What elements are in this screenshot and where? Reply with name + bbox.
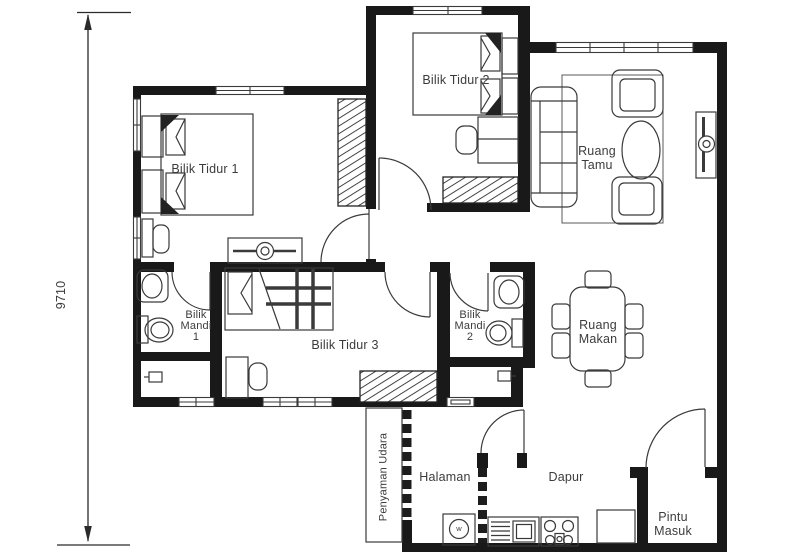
door-bilik-tidur-1 bbox=[321, 209, 369, 262]
nightstand-icon bbox=[142, 170, 163, 213]
wall-bm2-right bbox=[523, 262, 535, 368]
fixtures-bilik-mandi-1 bbox=[137, 270, 173, 382]
tap-icon bbox=[498, 371, 511, 381]
hatched-wardrobe-icon bbox=[360, 371, 437, 402]
window-bt2-top bbox=[413, 7, 482, 15]
window-ruangtamu-top bbox=[556, 43, 693, 53]
tap-icon bbox=[149, 372, 162, 382]
window-bt1-top bbox=[216, 87, 284, 95]
wall-entry-stub-right bbox=[705, 467, 719, 478]
dresser-round-mirror-icon bbox=[228, 238, 302, 263]
vanity-table-icon bbox=[142, 219, 153, 257]
window-bottom-1 bbox=[179, 398, 214, 407]
counter-icon bbox=[597, 510, 635, 543]
washer-letter: w bbox=[456, 525, 461, 533]
chair-icon bbox=[456, 126, 477, 154]
nightstand-icon bbox=[142, 116, 163, 157]
plaid-bed-icon bbox=[225, 268, 333, 330]
room-label-bilik-mandi-1: Bilik Mandi 1 bbox=[181, 310, 212, 344]
hatched-wardrobe-icon bbox=[443, 177, 518, 203]
kitchen-sink-icon bbox=[488, 517, 539, 546]
furniture-bilik-tidur-2 bbox=[413, 33, 518, 203]
dimension-value: 9710 bbox=[54, 281, 68, 310]
wall-bt3-bm2-divider bbox=[437, 262, 450, 407]
chair-icon bbox=[153, 225, 169, 253]
door-bilik-tidur-2 bbox=[379, 158, 431, 210]
arrow-up-icon bbox=[84, 14, 92, 30]
dining-chair-icon bbox=[585, 271, 611, 288]
window-left-upper bbox=[134, 99, 141, 151]
stove-icon bbox=[541, 517, 578, 546]
furniture-bilik-tidur-1 bbox=[142, 99, 366, 263]
dining-chair-icon bbox=[585, 370, 611, 387]
pillow-icon bbox=[228, 272, 252, 314]
armchair-icon bbox=[612, 177, 662, 224]
dining-chair-icon bbox=[625, 304, 643, 329]
floor-plan-canvas: Bilik Tidur 1 Bilik Tidur 2 Bilik Tidur … bbox=[0, 0, 800, 552]
wall-bm1-bt3-divider bbox=[210, 262, 222, 407]
wall-penyaman-stub bbox=[402, 520, 412, 546]
dimension-line bbox=[57, 13, 131, 546]
coffee-table-icon bbox=[622, 121, 660, 179]
wall-bm2-inner bbox=[450, 357, 523, 367]
nightstand-icon bbox=[502, 78, 518, 114]
wall-bt2-right bbox=[518, 6, 530, 212]
door-bilik-mandi-2 bbox=[450, 273, 488, 311]
wall-bt2-left bbox=[366, 6, 376, 209]
sofa-icon bbox=[531, 87, 577, 207]
nightstand-icon bbox=[502, 38, 518, 74]
desk-icon bbox=[478, 117, 518, 163]
wall-bm2-jog bbox=[511, 367, 523, 407]
room-label-halaman: Halaman bbox=[419, 470, 470, 484]
window-bm2-louver bbox=[447, 398, 474, 407]
room-label-penyaman-udara: Penyaman Udara bbox=[378, 433, 389, 521]
window-left-lower bbox=[134, 217, 141, 259]
room-label-dapur: Dapur bbox=[548, 470, 583, 484]
room-label-bilik-mandi-2: Bilik Mandi 2 bbox=[455, 310, 486, 344]
chair-icon bbox=[249, 363, 267, 390]
dining-chair-icon bbox=[625, 333, 643, 358]
wall-vestibule-left bbox=[637, 467, 648, 552]
dining-chair-icon bbox=[552, 304, 570, 329]
wall-kitchen-door-stub bbox=[477, 453, 488, 468]
dining-chair-icon bbox=[552, 333, 570, 358]
wall-entry-stub-left bbox=[630, 467, 648, 478]
room-label-bilik-tidur-1: Bilik Tidur 1 bbox=[171, 162, 238, 176]
floor-plan-drawing bbox=[0, 0, 800, 552]
room-label-ruang-makan: Ruang Makan bbox=[579, 318, 618, 346]
door-bilik-mandi-1 bbox=[172, 272, 210, 310]
room-label-bilik-tidur-3: Bilik Tidur 3 bbox=[311, 338, 378, 352]
armchair-icon bbox=[612, 70, 663, 117]
window-bottom-3 bbox=[298, 398, 332, 407]
kitchen-counter bbox=[443, 510, 635, 546]
desk-icon bbox=[226, 357, 248, 398]
door-bilik-tidur-3 bbox=[385, 272, 430, 317]
furniture-ruang-tamu bbox=[531, 70, 716, 224]
toilet-tank-icon bbox=[512, 319, 523, 347]
window-bottom-2 bbox=[263, 398, 297, 407]
hatched-wardrobe-icon bbox=[338, 99, 366, 206]
arrow-down-icon bbox=[84, 526, 92, 542]
door-halaman bbox=[481, 410, 524, 453]
room-label-bilik-tidur-2: Bilik Tidur 2 bbox=[422, 73, 489, 87]
wall-bt2-bottom bbox=[427, 203, 530, 212]
door-entrance bbox=[646, 409, 705, 468]
tv-unit-icon bbox=[696, 112, 716, 178]
furniture-bilik-tidur-3 bbox=[225, 268, 437, 402]
room-label-ruang-tamu: Ruang Tamu bbox=[578, 144, 616, 172]
wall-kitchen-door-jamb bbox=[517, 453, 527, 468]
wall-bm1-utility-divider bbox=[133, 352, 222, 361]
room-label-pintu-masuk: Pintu Masuk bbox=[654, 510, 692, 538]
